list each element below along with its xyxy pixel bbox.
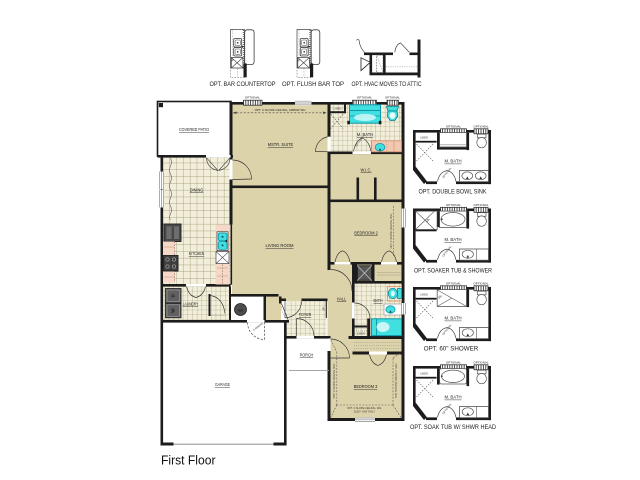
svg-text:WH: WH xyxy=(238,308,243,312)
svg-text:DINING: DINING xyxy=(190,188,204,193)
svg-text:OPT. SOAK TUB W/ SHWR HEAD: OPT. SOAK TUB W/ SHWR HEAD xyxy=(410,424,496,431)
svg-text:W: W xyxy=(170,308,176,313)
svg-text:M. BATH: M. BATH xyxy=(357,132,374,137)
svg-text:OPTIONAL: OPTIONAL xyxy=(446,203,462,207)
svg-text:OPTIONAL: OPTIONAL xyxy=(385,96,401,100)
svg-text:LINEN: LINEN xyxy=(357,331,365,335)
svg-text:OPT. FLUSH BAR TOP: OPT. FLUSH BAR TOP xyxy=(282,81,345,88)
svg-text:OPT. 2 SLOPE CEILING, WH.: OPT. 2 SLOPE CEILING, WH. xyxy=(332,363,336,398)
svg-text:OPTIONAL: OPTIONAL xyxy=(473,281,489,285)
svg-text:PORCH: PORCH xyxy=(300,353,314,358)
svg-text:LINEN: LINEN xyxy=(420,136,428,140)
svg-text:OPTIONAL: OPTIONAL xyxy=(357,96,373,100)
svg-text:GARAGE: GARAGE xyxy=(215,382,230,387)
svg-text:OPT. SOAKER TUB & SHOWER: OPT. SOAKER TUB & SHOWER xyxy=(414,268,492,275)
svg-text:2/8: 2/8 xyxy=(321,307,325,311)
svg-text:FOYER: FOYER xyxy=(299,312,312,317)
svg-text:W.I.C.: W.I.C. xyxy=(361,168,372,173)
svg-text:COVERED PATIO: COVERED PATIO xyxy=(179,127,210,132)
svg-text:OPT. 60" SHOWER: OPT. 60" SHOWER xyxy=(424,346,479,353)
svg-text:BEDROOM 2: BEDROOM 2 xyxy=(354,231,378,236)
svg-text:OPTIONAL: OPTIONAL xyxy=(473,360,489,364)
svg-text:LIVING ROOM: LIVING ROOM xyxy=(266,243,294,248)
svg-text:M. BATH: M. BATH xyxy=(444,316,461,321)
svg-text:M. BATH: M. BATH xyxy=(444,159,461,164)
svg-text:KITCHEN: KITCHEN xyxy=(189,251,205,256)
svg-text:OPTIONAL: OPTIONAL xyxy=(446,124,462,128)
svg-text:OPT. 2 SLOPE CEILING, ARBOR WH: OPT. 2 SLOPE CEILING, ARBOR WH xyxy=(255,108,306,112)
svg-text:OPTIONAL: OPTIONAL xyxy=(245,96,261,100)
svg-text:OPTIONAL: OPTIONAL xyxy=(473,203,489,207)
svg-text:HALL: HALL xyxy=(337,297,347,302)
svg-text:OPT. BAR COUNTERTOP: OPT. BAR COUNTERTOP xyxy=(210,81,277,88)
svg-text:LINEN: LINEN xyxy=(420,293,428,297)
svg-text:OPT. 2 SLOPE CEILING, WH.: OPT. 2 SLOPE CEILING, WH. xyxy=(389,213,393,248)
svg-text:M. BATH: M. BATH xyxy=(444,395,461,400)
svg-text:BEDROOM 3: BEDROOM 3 xyxy=(354,384,378,389)
svg-text:MSTR. SUITE: MSTR. SUITE xyxy=(268,142,294,147)
svg-text:OPT. 2 SLOPE CEILING, WH.: OPT. 2 SLOPE CEILING, WH. xyxy=(394,364,398,399)
svg-text:OPTIONAL: OPTIONAL xyxy=(446,360,462,364)
svg-text:D: D xyxy=(170,294,176,298)
svg-text:LINEN: LINEN xyxy=(334,106,342,110)
svg-text:First Floor: First Floor xyxy=(161,454,216,468)
svg-text:OPTIONAL: OPTIONAL xyxy=(473,124,489,128)
svg-text:OPT. DOUBLE BOWL SINK: OPT. DOUBLE BOWL SINK xyxy=(419,189,487,196)
svg-text:OPT. HVAC MOVES TO ATTIC: OPT. HVAC MOVES TO ATTIC xyxy=(352,81,422,88)
svg-text:OPT. 2 SLOPE CEILING, WH.: OPT. 2 SLOPE CEILING, WH. xyxy=(347,406,382,410)
svg-text:LINEN: LINEN xyxy=(420,372,428,376)
svg-text:ELEV. 'A36' ONLY: ELEV. 'A36' ONLY xyxy=(354,410,375,414)
svg-text:OPTIONAL: OPTIONAL xyxy=(446,281,462,285)
svg-text:LAUNDRY: LAUNDRY xyxy=(183,302,199,307)
svg-text:M. BATH: M. BATH xyxy=(444,237,461,242)
svg-text:BATH: BATH xyxy=(374,298,383,303)
